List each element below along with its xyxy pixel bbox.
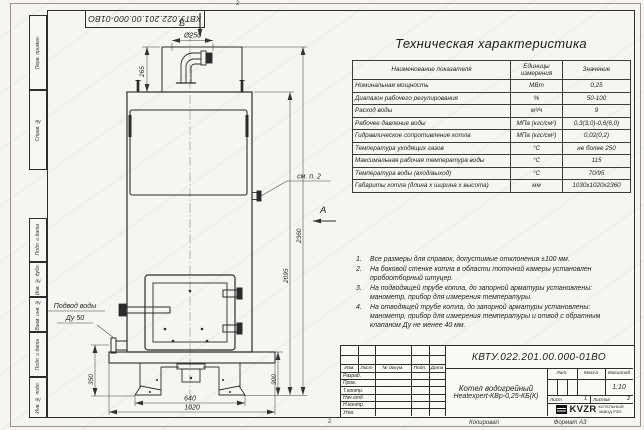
dim-chimney-diameter: Ø250 — [183, 33, 201, 40]
dim-640: 640 — [184, 396, 196, 403]
spec-units: МВт — [511, 80, 563, 93]
spec-name: Температура воды (вход/выход) — [353, 167, 511, 180]
spec-name: Температура уходящих газов — [353, 142, 511, 155]
tb-scale-label: Масштаб — [605, 371, 633, 376]
tb-doc-number: КВТУ.022.201.00.000-01ВО — [445, 346, 633, 368]
boiler-front-view-drawing: Б А Ø250 265 2095 2360 350 300 640 1020 … — [35, 7, 345, 422]
tb-row-dept-head: Нач.отд. — [343, 395, 364, 401]
dim-265: 265 — [139, 66, 146, 78]
flue-elbow — [176, 51, 212, 83]
spec-value: не более 250 — [563, 142, 631, 155]
view-b-label: Б — [179, 18, 185, 28]
tb-scale-value: 1:10 — [605, 379, 633, 395]
table-row: Номинальная мощностьМВт0,25 — [353, 80, 631, 93]
spec-units: °С — [511, 142, 563, 155]
spec-table-title: Техническая характеристика — [352, 36, 630, 51]
tb-col-docnum: № докум. — [375, 366, 411, 371]
svg-text:Подвод воды: Подвод воды — [54, 302, 97, 310]
svg-text:Ду 50: Ду 50 — [65, 315, 84, 322]
dim-2095: 2095 — [283, 268, 290, 284]
list-item: 2.На боковой стенке котла в области топо… — [356, 266, 621, 284]
spec-name: Максимальная рабочая температура воды — [353, 155, 511, 168]
spec-units: % — [511, 92, 563, 105]
table-row: Максимальная рабочая температура воды°С1… — [353, 155, 631, 168]
spec-value: 0,3(3,0)-0,6(6,0) — [563, 117, 631, 130]
tb-row-approved: Утв. — [343, 410, 354, 416]
tb-product-name: Котел водогрейный Heatexpert-КВр-0,25-КБ… — [445, 368, 547, 416]
base-plate — [109, 352, 275, 363]
spec-units: м³/ч — [511, 105, 563, 118]
spec-header-name: Наименование показателя — [353, 61, 511, 80]
see-note-2-callout: см. п. 2 — [297, 174, 321, 181]
dim-2360: 2360 — [296, 228, 303, 244]
door-handle — [123, 307, 170, 313]
tb-row-ncontrol: Н.контр. — [343, 402, 364, 408]
company-logo: KVZR КОТЕЛЬНЫЙ ЗАВОД РЭП — [547, 403, 633, 416]
table-row: Расход водым³/ч9 — [353, 105, 631, 118]
spec-name: Диапазон рабочего регулирования — [353, 92, 511, 105]
table-row: Гидравлическое сопротивление котлаМПа (к… — [353, 130, 631, 143]
spec-name: Расход воды — [353, 105, 511, 118]
list-item: 4.На отводящей трубе котла, до запорной … — [356, 304, 621, 331]
chimney-collar — [162, 47, 242, 92]
spec-units: МПа (кгс/см²) — [511, 130, 563, 143]
spec-value: 70/95 — [563, 167, 631, 180]
notes-list: 1.Все размеры для справок, допустимые от… — [356, 256, 621, 332]
table-row: Температура уходящих газов°Сне более 250 — [353, 142, 631, 155]
dim-1020: 1020 — [184, 405, 200, 412]
tb-row-developed: Разраб. — [343, 373, 361, 379]
table-row: Температура воды (вход/выход)°С70/95 — [353, 167, 631, 180]
engineering-drawing-sheet: Перв. примен. Справ. № Подп. и дата Инв.… — [0, 0, 644, 430]
water-inlet-fitting — [97, 325, 127, 353]
spec-name: Габариты котла (длина х ширина х высота) — [353, 180, 511, 193]
kvzr-logo-icon — [556, 405, 567, 414]
footer-copied-label: Копировал — [452, 420, 516, 426]
spec-value: 115 — [563, 155, 631, 168]
tb-row-checked: Пров. — [343, 380, 356, 386]
tb-mass-label: Масса — [577, 371, 605, 376]
spec-table: Наименование показателя Единицы измерени… — [352, 60, 631, 193]
spec-name: Номинальная мощность — [353, 80, 511, 93]
spec-value: 1030х1020х2360 — [563, 180, 631, 193]
spec-units: МПа (кгс/см²) — [511, 117, 563, 130]
spec-value: 50-100 — [563, 92, 631, 105]
list-item: 1.Все размеры для справок, допустимые от… — [356, 256, 621, 265]
upper-panel — [130, 110, 247, 195]
water-inlet-callout: Подвод воды Ду 50 — [47, 302, 105, 323]
spec-units: мм — [511, 180, 563, 193]
table-row: Рабочее давление водыМПа (кгс/см²)0,3(3,… — [353, 117, 631, 130]
dim-300: 300 — [271, 374, 278, 385]
spec-header-row: Наименование показателя Единицы измерени… — [353, 61, 631, 80]
view-a-label: А — [319, 205, 326, 216]
dim-350: 350 — [88, 374, 95, 385]
spec-name: Гидравлическое сопротивление котла — [353, 130, 511, 143]
spec-value: 9 — [563, 105, 631, 118]
list-item: 3.На подводящей трубе котла, до запорной… — [356, 285, 621, 303]
tb-row-tcontrol: Т.контр. — [343, 388, 363, 394]
title-block: Изм. Лист № докум. Подп. Дата Разраб. Пр… — [340, 345, 635, 418]
spec-units: °С — [511, 167, 563, 180]
spec-value: 0,25 — [563, 80, 631, 93]
tb-col-sign: Подп. — [411, 366, 429, 371]
spec-value: 0,02(0,2) — [563, 130, 631, 143]
tb-col-list: Лист — [358, 366, 375, 371]
tb-col-izm: Изм. — [341, 366, 358, 371]
spec-units: °С — [511, 155, 563, 168]
tb-sheet-cell: Лист 1 — [547, 395, 590, 403]
furnace-door — [119, 275, 242, 350]
table-row: Диапазон рабочего регулирования%50-100 — [353, 92, 631, 105]
spec-header-units: Единицы измерения — [511, 61, 563, 80]
tb-lit-label: Лит. — [547, 371, 577, 376]
tb-col-date: Дата — [429, 366, 445, 371]
company-subtitle: КОТЕЛЬНЫЙ ЗАВОД РЭП — [599, 405, 624, 414]
tb-sheets-cell: Листов 2 — [590, 395, 633, 403]
spec-name: Рабочее давление воды — [353, 117, 511, 130]
footer-format-label: Формат А3 — [540, 420, 600, 426]
spec-header-value: Значение — [563, 61, 631, 80]
kvzr-logo-text: KVZR — [569, 404, 596, 415]
sampling-fitting — [252, 181, 331, 201]
table-row: Габариты котла (длина х ширина х высота)… — [353, 180, 631, 193]
